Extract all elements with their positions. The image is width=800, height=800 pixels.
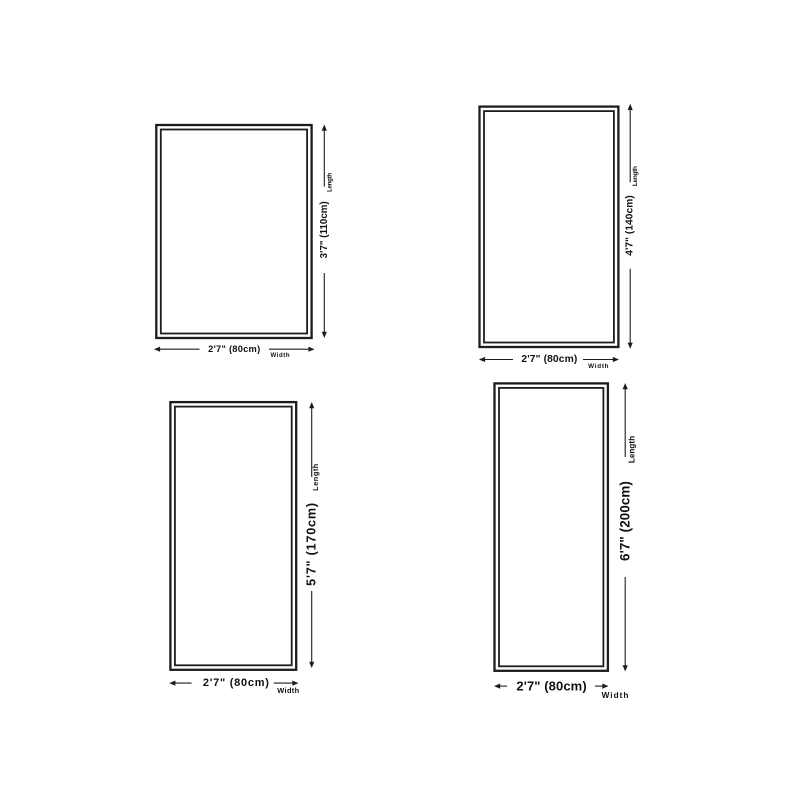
svg-text:Length: Length xyxy=(632,166,639,186)
svg-text:3'7" (110cm): 3'7" (110cm) xyxy=(319,201,330,258)
svg-text:Length: Length xyxy=(311,463,320,491)
svg-text:5'7" (170cm): 5'7" (170cm) xyxy=(305,502,319,586)
svg-text:4'7" (140cm): 4'7" (140cm) xyxy=(625,195,636,256)
svg-text:6'7" (200cm): 6'7" (200cm) xyxy=(618,481,633,561)
svg-text:Width: Width xyxy=(602,691,630,700)
svg-text:Width: Width xyxy=(270,352,290,359)
svg-text:Length: Length xyxy=(326,173,333,192)
svg-text:Width: Width xyxy=(588,363,609,370)
svg-text:2'7" (80cm): 2'7" (80cm) xyxy=(208,344,260,354)
svg-text:Width: Width xyxy=(277,686,299,695)
svg-text:2'7" (80cm): 2'7" (80cm) xyxy=(516,679,586,694)
svg-text:Length: Length xyxy=(628,436,637,463)
svg-text:2'7" (80cm): 2'7" (80cm) xyxy=(203,677,270,689)
svg-text:2'7" (80cm): 2'7" (80cm) xyxy=(521,354,577,365)
